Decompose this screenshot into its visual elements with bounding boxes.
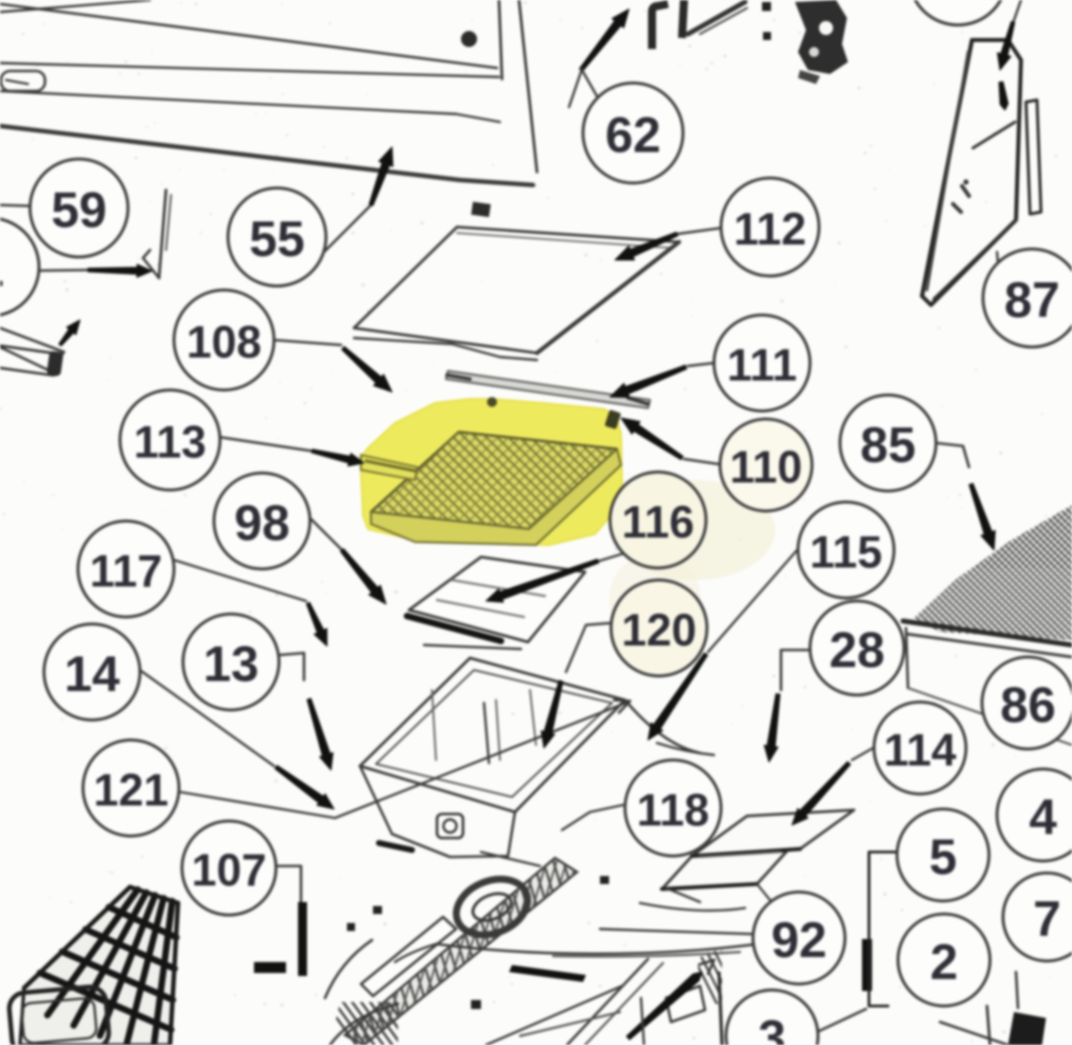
svg-text:14: 14	[64, 646, 120, 702]
svg-text:86: 86	[1000, 677, 1056, 733]
svg-text:120: 120	[621, 605, 696, 656]
svg-text:116: 116	[622, 497, 695, 548]
svg-text:107: 107	[191, 845, 266, 896]
svg-text:7: 7	[1033, 891, 1061, 947]
svg-text:118: 118	[637, 785, 710, 836]
svg-text:114: 114	[884, 725, 957, 776]
svg-text:2: 2	[930, 934, 958, 990]
svg-text:108: 108	[186, 317, 261, 368]
svg-text:115: 115	[810, 527, 883, 578]
svg-text:92: 92	[771, 912, 827, 968]
svg-text:110: 110	[730, 442, 803, 493]
svg-text:13: 13	[203, 636, 259, 692]
svg-text:87: 87	[1004, 272, 1060, 328]
svg-text:113: 113	[134, 417, 207, 468]
svg-text:117: 117	[90, 546, 163, 597]
svg-text:55: 55	[249, 211, 305, 267]
svg-text:59: 59	[51, 182, 107, 238]
svg-text:5: 5	[929, 829, 957, 885]
svg-text:28: 28	[829, 622, 885, 678]
svg-text:121: 121	[93, 765, 168, 816]
svg-text:111: 111	[727, 340, 797, 391]
svg-text:3: 3	[758, 1010, 786, 1045]
svg-text:62: 62	[605, 107, 661, 163]
svg-text:112: 112	[734, 204, 807, 255]
svg-text:85: 85	[860, 417, 916, 473]
svg-text:1: 1	[0, 241, 4, 297]
svg-text:98: 98	[234, 495, 290, 551]
svg-text:4: 4	[1029, 789, 1057, 845]
